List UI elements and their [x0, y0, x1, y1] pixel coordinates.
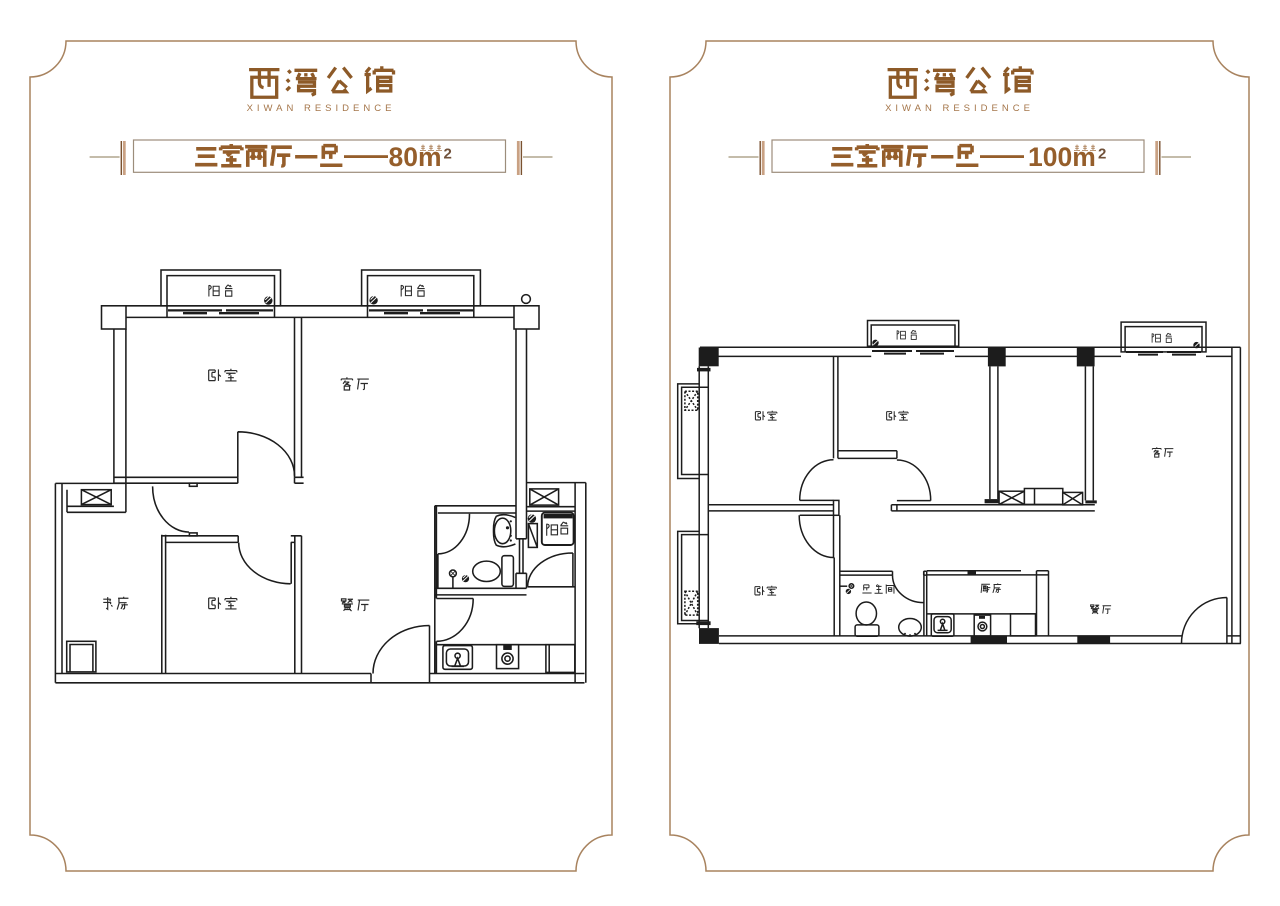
- svg-text:XIWAN RESIDENCE: XIWAN RESIDENCE: [247, 103, 396, 114]
- svg-text:2: 2: [444, 146, 452, 163]
- svg-text:80m: 80m: [389, 142, 442, 172]
- svg-text:2: 2: [1098, 146, 1106, 163]
- svg-text:XIWAN RESIDENCE: XIWAN RESIDENCE: [885, 103, 1034, 114]
